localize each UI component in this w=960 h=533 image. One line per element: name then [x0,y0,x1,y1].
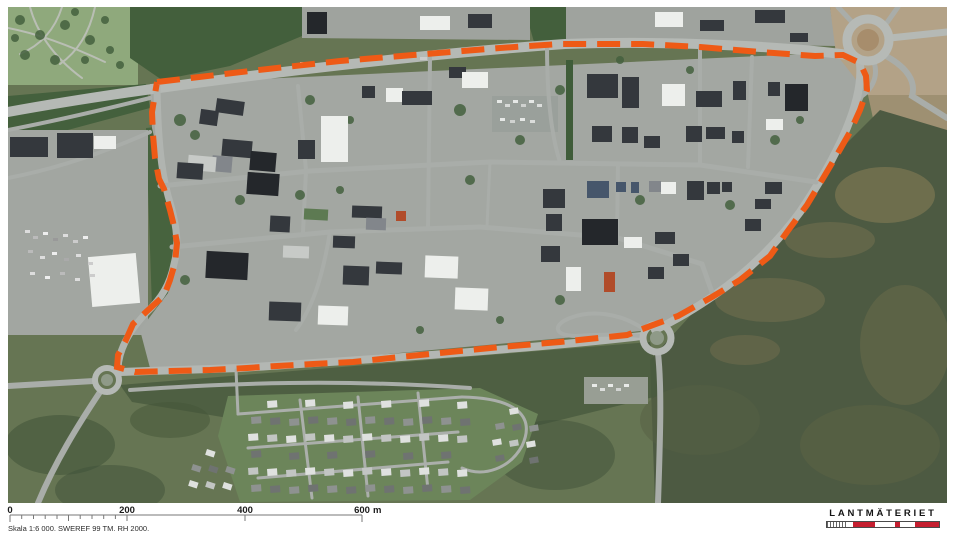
logo-bar-segment-w [875,522,895,527]
logo-bar-segment-r [853,522,875,527]
scale-bar-ruler [10,515,362,522]
scale-label-400: 400 [237,505,253,516]
aerial-photo-map [0,0,960,533]
lantmateriet-logo-text: LANTMÄTERIET [826,508,940,519]
logo-bar-segment-ticks [827,522,846,527]
scale-label-200: 200 [119,505,135,516]
scale-bar: 0 200 400 600 m Skala 1:6 000. SWEREF 99… [0,503,400,533]
map-footer: 0 200 400 600 m Skala 1:6 000. SWEREF 99… [0,503,960,533]
scale-caption: Skala 1:6 000. SWEREF 99 TM. RH 2000. [8,524,149,533]
map-layers [5,7,950,515]
map-viewport [0,0,960,533]
logo-bar-segment-w [900,522,916,527]
lantmateriet-logo: LANTMÄTERIET [826,508,940,528]
logo-bar-segment-r [915,522,939,527]
scale-label-600: 600 [354,505,370,516]
lantmateriet-logo-bar [826,521,940,528]
scale-label-0: 0 [7,505,12,516]
logo-bar-segment-w [846,522,853,527]
scale-unit: m [373,505,381,516]
